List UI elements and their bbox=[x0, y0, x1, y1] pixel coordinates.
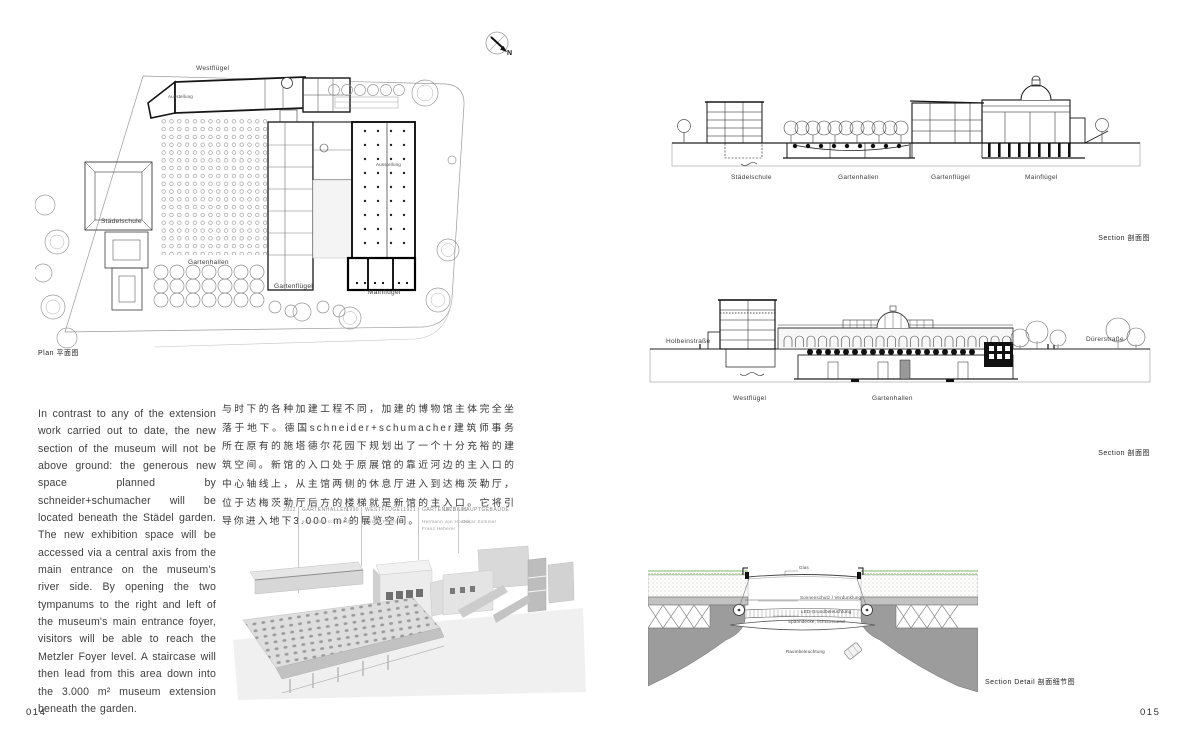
timeline-year: 2012 bbox=[270, 508, 296, 513]
section1-label-gartenhallen: Gartenhallen bbox=[838, 175, 879, 182]
plan-label-gartenhallen: Gartenhallen bbox=[188, 260, 229, 267]
spotlight-fixture bbox=[844, 642, 863, 660]
detail-label-room-light: Raumbeleuchtung bbox=[786, 650, 825, 655]
timeline-architect: Gustav Peichl bbox=[365, 519, 415, 526]
section2-caption: Section 剖面图 bbox=[1040, 450, 1150, 457]
plan-museum-complex bbox=[268, 122, 415, 290]
page-number-right: 015 bbox=[1140, 708, 1160, 718]
concrete-right bbox=[861, 605, 978, 692]
section2-label-westfluegel: Westflügel bbox=[733, 396, 766, 403]
tree-allee bbox=[154, 265, 345, 317]
plan-staedelschule bbox=[85, 162, 152, 310]
page-number-left: 014 bbox=[26, 708, 46, 718]
green-roof-right bbox=[861, 570, 978, 575]
plan-label-gartenfluegel: Gartenflügel bbox=[274, 284, 313, 291]
section1-caption: Section 剖面图 bbox=[1040, 235, 1150, 242]
detail-label-base-light: LED-Grundbeleuchtung bbox=[801, 610, 851, 615]
plan-caption: Plan 平面图 bbox=[38, 350, 79, 357]
street-kerb bbox=[155, 298, 452, 347]
north-label: N bbox=[507, 50, 512, 57]
north-arrow-icon bbox=[476, 24, 520, 68]
plan-label-westfluegel: Westflügel bbox=[196, 66, 229, 73]
timeline-building: HAUPTGEBÄUDE bbox=[462, 508, 509, 513]
timeline-year: 1990 bbox=[333, 508, 359, 513]
body-text-english: In contrast to any of the extension work… bbox=[38, 406, 216, 718]
plan-label-ausstellung-west: Ausstellung bbox=[168, 95, 193, 100]
detail-label-shading: Sonnenschutz / Verdunklung bbox=[800, 596, 861, 601]
green-roof-left bbox=[648, 570, 748, 575]
timeline-year: 1878 bbox=[430, 508, 456, 513]
skylight-grid bbox=[158, 118, 267, 255]
book-spread: N Westflügel Ausstellung Ausstellung Stä… bbox=[0, 0, 1190, 750]
site-plan-drawing bbox=[35, 55, 480, 350]
section1-label-gartenfluegel: Gartenflügel bbox=[931, 175, 970, 182]
section-detail-caption: Section Detail 剖面细节图 bbox=[985, 679, 1075, 686]
timeline-architect: Oskar Sommer bbox=[462, 519, 512, 526]
detail-label-membrane: Spanndecke, lichtstreuend bbox=[788, 620, 845, 625]
plan-label-mainfluegel: Mainflügel bbox=[368, 290, 401, 297]
section-detail-drawing bbox=[648, 518, 978, 692]
timeline-year: 1921 bbox=[390, 508, 416, 513]
plan-label-ausstellung-haupt: Ausstellung bbox=[376, 163, 401, 168]
plan-westfluegel bbox=[148, 77, 350, 124]
section2-label-holbeinstrasse: Holbeinstraße bbox=[666, 339, 710, 346]
section1-label-mainfluegel: Mainflügel bbox=[1025, 175, 1058, 182]
section1-drawing bbox=[665, 68, 1165, 190]
plan-label-staedelschule: Städelschule bbox=[101, 219, 142, 226]
section2-label-gartenhallen: Gartenhallen bbox=[872, 396, 913, 403]
detail-label-glass: Glas bbox=[799, 566, 809, 571]
section2-label-duererstrasse: Dürerstraße bbox=[1086, 337, 1124, 344]
section1-label-staedelschule: Städelschule bbox=[731, 175, 772, 182]
axonometric-cutaway-image bbox=[228, 540, 590, 705]
concrete-left bbox=[648, 605, 745, 686]
